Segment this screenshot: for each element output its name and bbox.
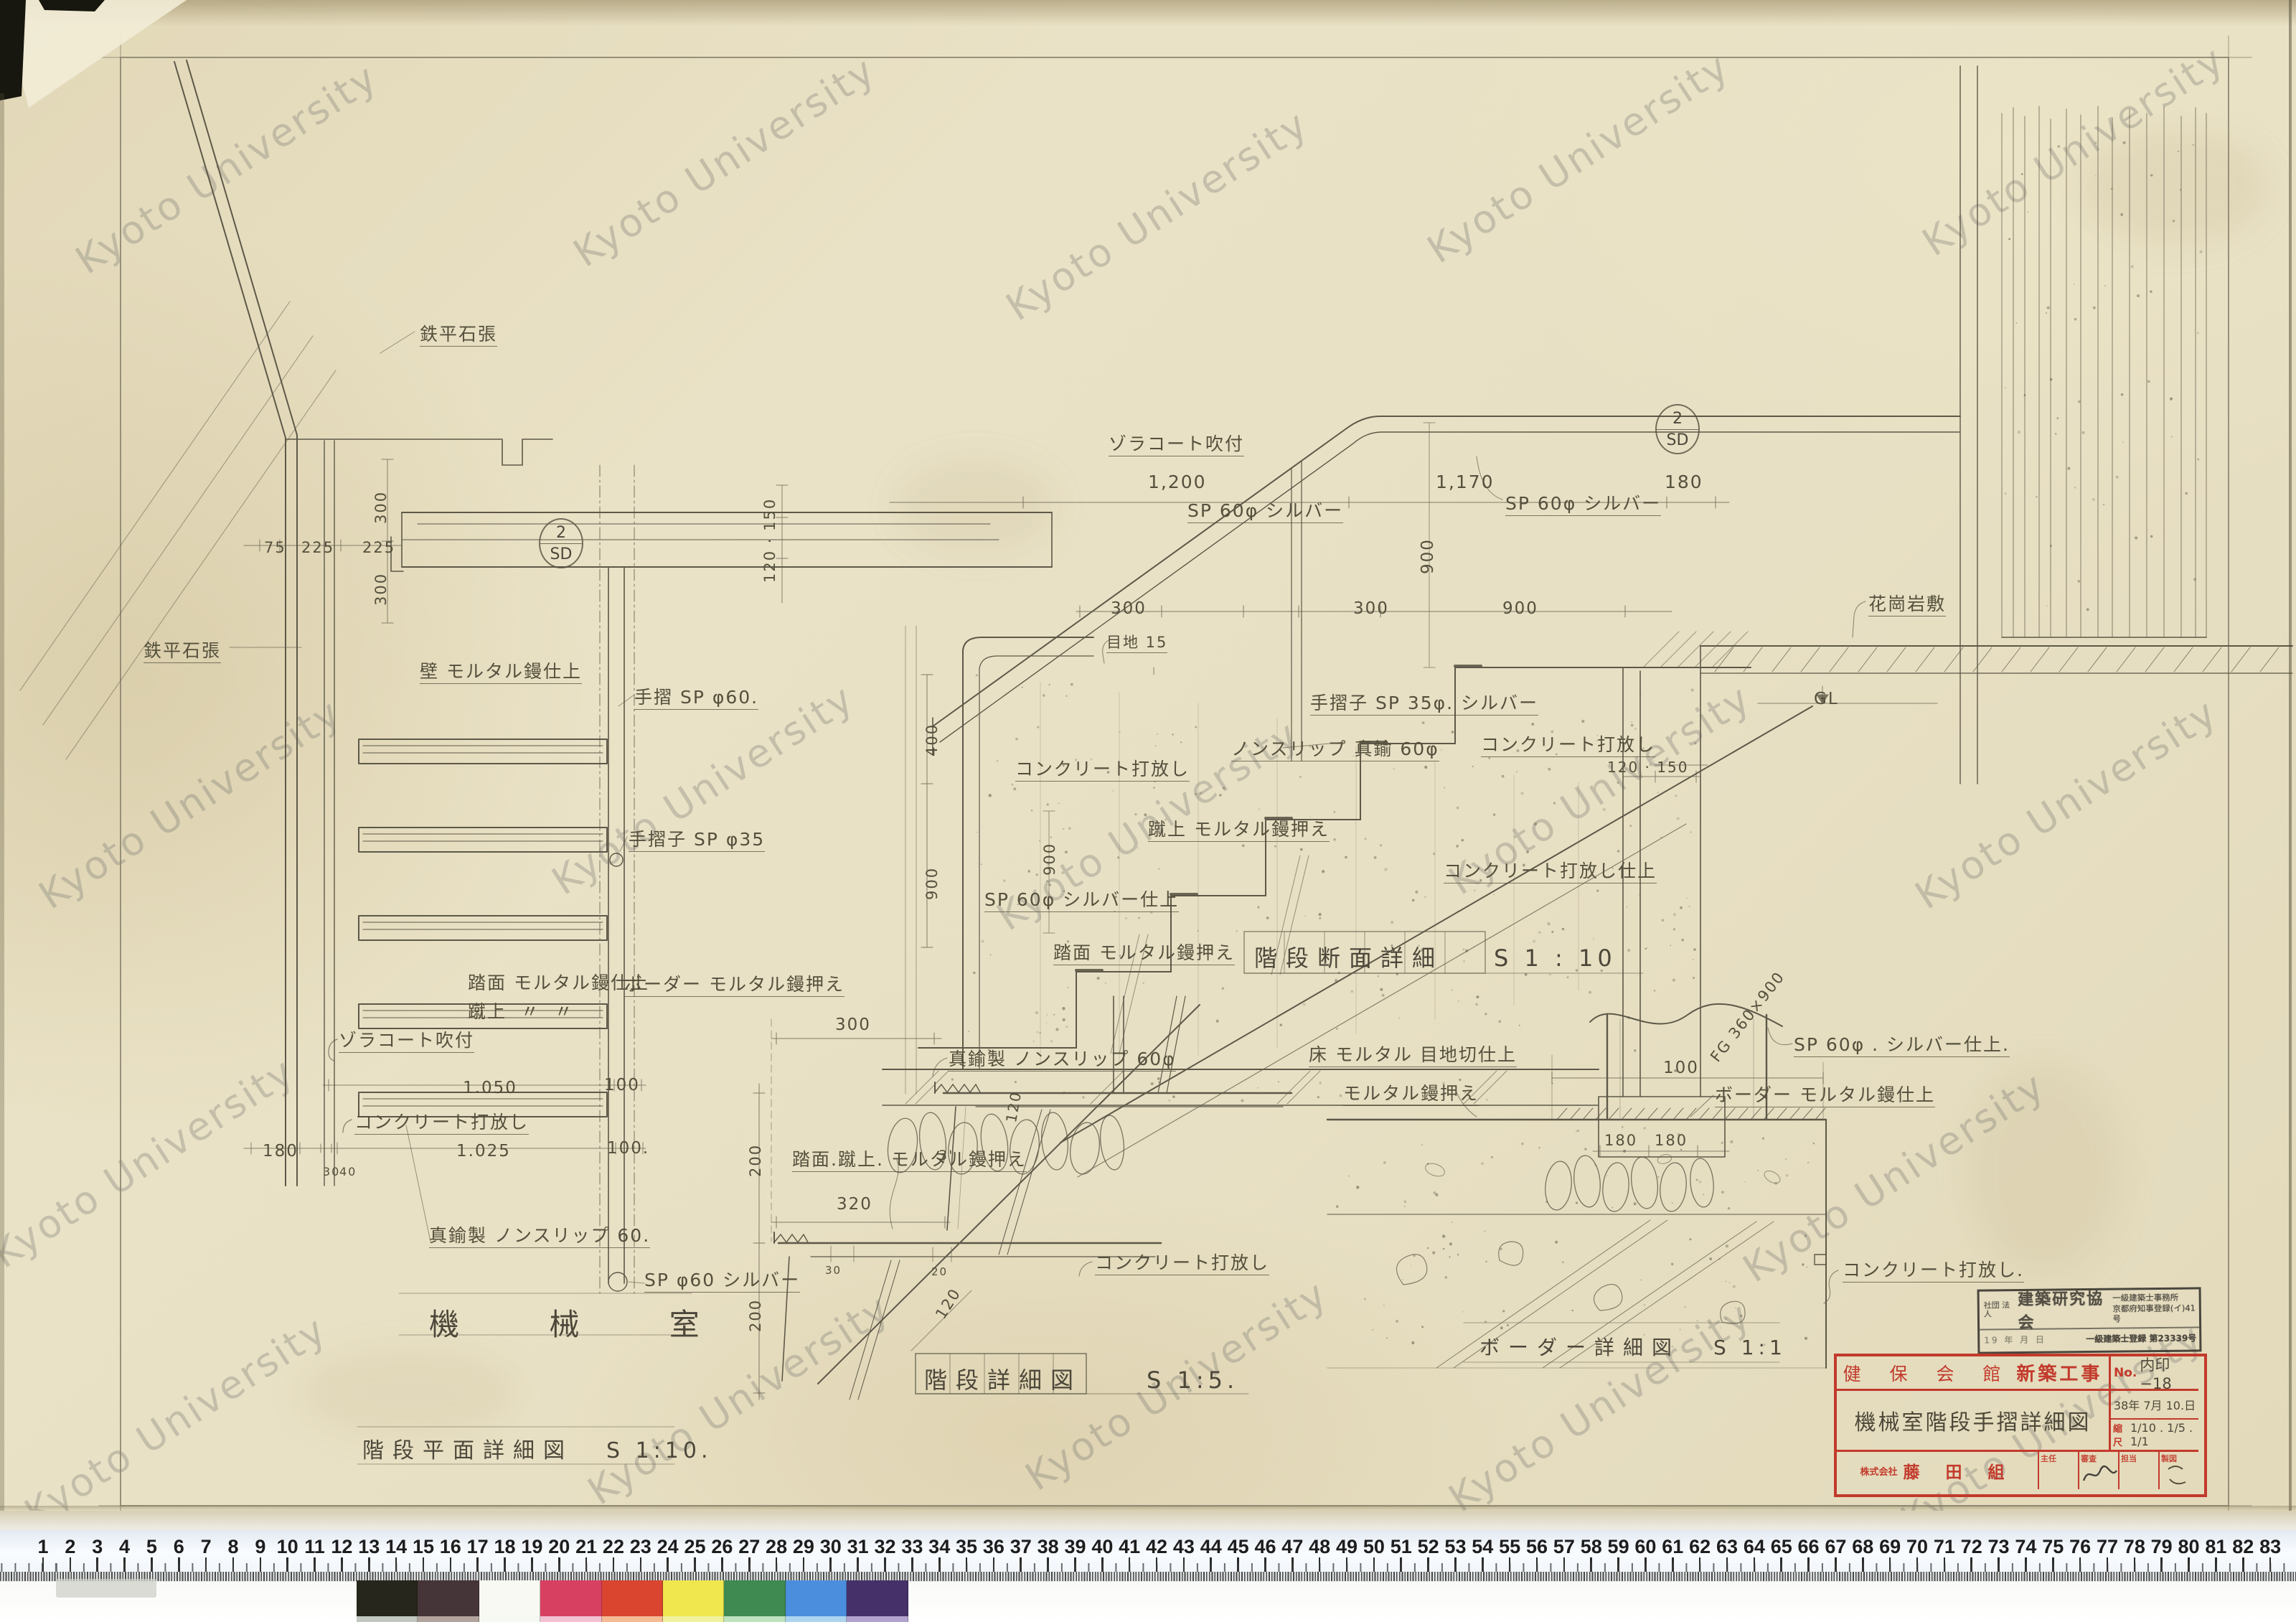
color-patch — [418, 1580, 479, 1616]
color-patch — [357, 1580, 418, 1616]
ruler-number: 26 — [711, 1536, 733, 1558]
ruler-number: 70 — [1906, 1536, 1928, 1558]
color-patch — [602, 1616, 663, 1622]
annotation-text: ボーダー モルタル鏝仕上 — [1715, 1085, 1935, 1107]
company-prefix: 株式会社 — [1860, 1464, 1897, 1478]
ruler-number: 78 — [2124, 1536, 2145, 1558]
ruler-number: 62 — [1689, 1536, 1711, 1558]
ruler-number: 19 — [521, 1536, 542, 1558]
ruler-number: 8 — [227, 1536, 238, 1558]
ruler-number: 42 — [1146, 1536, 1167, 1558]
ruler-number: 43 — [1173, 1536, 1195, 1558]
ruler-number: 69 — [1879, 1536, 1901, 1558]
ruler-number: 68 — [1852, 1536, 1873, 1558]
color-patch — [786, 1616, 847, 1622]
ruler-number: 61 — [1662, 1536, 1683, 1558]
ruler-number: 13 — [358, 1536, 380, 1558]
ruler-number: 60 — [1634, 1536, 1656, 1558]
ruler-number: 66 — [1798, 1536, 1820, 1558]
ruler-number: 31 — [847, 1536, 869, 1558]
color-patch — [663, 1580, 724, 1616]
ruler-number: 79 — [2151, 1536, 2173, 1558]
section-title: 階段断面詳細S 1 : 10 — [1254, 940, 1617, 973]
ruler-number: 25 — [684, 1536, 705, 1558]
ruler-number: 71 — [1934, 1536, 1955, 1558]
ruler-number: 83 — [2259, 1536, 2281, 1558]
ruler-number: 11 — [304, 1536, 325, 1558]
approval-cell: 主任 — [2038, 1452, 2078, 1489]
stamp-license-no: 一級建築士登録 第23339号 — [2086, 1331, 2196, 1345]
stamp-org-name: 建築研究協会 — [2018, 1286, 2113, 1333]
ruler-number: 41 — [1119, 1536, 1140, 1558]
approval-cell-signature: 審査 — [2078, 1452, 2118, 1489]
stamp-date-row: 19 年 月 日 — [1984, 1333, 2046, 1346]
room-label: 機 械 室 — [429, 1300, 740, 1344]
ruler-number: 23 — [630, 1536, 651, 1558]
scan-top-edge — [0, 0, 2296, 26]
ruler-number: 37 — [1010, 1536, 1032, 1558]
color-patch — [357, 1616, 418, 1622]
ruler-number: 4 — [119, 1536, 130, 1558]
annotation-text: 100 — [1663, 1059, 1699, 1077]
ruler-number: 33 — [901, 1536, 923, 1558]
ruler-half-ticks — [0, 1563, 2296, 1572]
ruler-number: 53 — [1444, 1536, 1466, 1558]
color-patch — [847, 1580, 908, 1616]
ruler-number: 2 — [65, 1536, 75, 1558]
color-patch — [663, 1616, 724, 1622]
scanned-drawing-page: Kyoto UniversityKyoto UniversityKyoto Un… — [0, 0, 2296, 1622]
ruler-number: 47 — [1281, 1536, 1303, 1558]
ruler-number: 52 — [1418, 1536, 1439, 1558]
ruler-number: 17 — [467, 1536, 489, 1558]
ruler-number: 6 — [174, 1536, 184, 1558]
ruler-number: 9 — [255, 1536, 265, 1558]
approval-cell-marks: 製図 — [2158, 1452, 2198, 1489]
color-patch — [724, 1616, 785, 1622]
color-patch — [786, 1580, 847, 1616]
ruler-number: 59 — [1608, 1536, 1629, 1558]
ruler-number: 29 — [793, 1536, 814, 1558]
detail-reference-bubble: 2SD — [539, 518, 583, 568]
scale-ruler: 1234567891011121314151617181920212223242… — [0, 1530, 2296, 1580]
pencil-marks — [2161, 1461, 2197, 1489]
ruler-number: 72 — [1961, 1536, 1982, 1558]
ruler-number: 55 — [1499, 1536, 1520, 1558]
scale-value: 1/10 . 1/5 . 1/1 — [2130, 1421, 2198, 1448]
color-patch — [479, 1580, 540, 1616]
bubble-text — [1657, 429, 1698, 430]
drawing-title: 機械室階段手摺詳細図 — [1837, 1391, 2111, 1450]
paper-right-edge — [2289, 0, 2292, 1511]
ruler-number: 73 — [1988, 1536, 2010, 1558]
ruler-number: 46 — [1254, 1536, 1276, 1558]
ruler-number: 56 — [1526, 1536, 1548, 1558]
plan-title: 階段平面詳細図S 1:10. — [362, 1433, 712, 1464]
ruler-number: 15 — [413, 1536, 434, 1558]
ruler-number: 75 — [2042, 1536, 2064, 1558]
color-patch — [540, 1616, 601, 1622]
bubble-text: SD — [550, 545, 573, 563]
bubble-text: 2 — [556, 524, 566, 542]
signature-scribble — [2081, 1461, 2118, 1489]
ruler-number: 65 — [1771, 1536, 1792, 1558]
border-detail-title: ボーダー詳細図S 1:1 — [1479, 1332, 1787, 1361]
construction-type: 新築工事 — [2016, 1359, 2102, 1386]
stamp-registration-line: 京都府知事登録(イ)41号 — [2112, 1303, 2196, 1324]
ruler-number: 28 — [766, 1536, 787, 1558]
ruler-number: 81 — [2205, 1536, 2226, 1558]
ruler-number: 36 — [983, 1536, 1004, 1558]
ruler-number: 48 — [1309, 1536, 1330, 1558]
border-detail-annotations: SP 60φ . シルバー仕上.100モルタル鏝押えボーダー モルタル鏝仕上コン… — [0, 0, 2296, 1511]
ruler-number: 16 — [440, 1536, 461, 1558]
ruler-number: 1 — [37, 1536, 48, 1558]
annotation-text: SP 60φ . シルバー仕上. — [1794, 1035, 2010, 1057]
color-patch — [540, 1580, 601, 1616]
ruler-number: 45 — [1228, 1536, 1249, 1558]
ruler-number: 57 — [1553, 1536, 1575, 1558]
ruler-number: 20 — [548, 1536, 570, 1558]
ruler-number: 77 — [2097, 1536, 2118, 1558]
scan-reference-strip: 1234567891011121314151617181920212223242… — [0, 1511, 2296, 1622]
ruler-number: 27 — [738, 1536, 760, 1558]
stair-detail-title: 階段詳細図S 1:5. — [924, 1362, 1238, 1395]
bubble-text: SD — [1667, 431, 1689, 449]
ruler-number: 63 — [1716, 1536, 1738, 1558]
ruler-number: 44 — [1200, 1536, 1222, 1558]
ruler-number: 32 — [874, 1536, 895, 1558]
bubble-text: 2 — [1672, 410, 1683, 428]
ruler-mm-ticks — [0, 1572, 2296, 1581]
ruler-number: 39 — [1064, 1536, 1086, 1558]
ruler-number: 7 — [201, 1536, 212, 1558]
color-patch — [418, 1616, 479, 1622]
ruler-number: 82 — [2232, 1536, 2254, 1558]
ruler-number: 35 — [956, 1536, 977, 1558]
title-block: 健 保 会 館 新築工事 No. 内印−18 機械室階段手摺詳細図 38年 7月… — [1834, 1354, 2207, 1497]
ruler-number: 58 — [1581, 1536, 1602, 1558]
drawing-no-value: 内印−18 — [2140, 1354, 2198, 1392]
paper-left-edge — [0, 93, 4, 1511]
ruler-number: 22 — [603, 1536, 624, 1558]
architect-approval-stamp: 社団 法人 建築研究協会 一級建築士事務所 京都府知事登録(イ)41号 19 年… — [1977, 1287, 2202, 1354]
stamp-org-prefix: 社団 法人 — [1984, 1302, 2015, 1319]
company-name: 藤 田 組 — [1904, 1458, 2015, 1483]
color-patch — [724, 1580, 785, 1616]
ruler-number: 50 — [1363, 1536, 1385, 1558]
drawing-paper: Kyoto UniversityKyoto UniversityKyoto Un… — [0, 0, 2296, 1511]
ruler-number: 74 — [2015, 1536, 2036, 1558]
annotation-text: モルタル鏝押え — [1343, 1084, 1479, 1106]
ruler-number: 38 — [1038, 1536, 1059, 1558]
annotation-text: コンクリート打放し. — [1843, 1260, 2024, 1283]
scan-corner-mark — [39, 0, 105, 11]
ruler-number: 10 — [277, 1536, 298, 1558]
ruler-number: 76 — [2069, 1536, 2091, 1558]
drawing-date: 38年 7月 10.日 — [2111, 1391, 2198, 1420]
drawing-no-label: No. — [2114, 1366, 2137, 1380]
ruler-number: 30 — [820, 1536, 842, 1558]
ruler-number: 3 — [92, 1536, 103, 1558]
ruler-number: 21 — [575, 1536, 597, 1558]
ruler-number: 67 — [1825, 1536, 1846, 1558]
ruler-number: 51 — [1391, 1536, 1412, 1558]
approval-cell: 担当 — [2118, 1452, 2158, 1489]
bubble-text — [540, 543, 582, 544]
ruler-number: 64 — [1744, 1536, 1765, 1558]
ruler-number: 14 — [385, 1536, 407, 1558]
color-patch — [602, 1580, 663, 1616]
ruler-number: 54 — [1472, 1536, 1493, 1558]
ruler-number: 5 — [146, 1536, 157, 1558]
detail-reference-bubble: 2SD — [1655, 404, 1700, 454]
project-name: 健 保 会 館 — [1843, 1360, 2013, 1386]
ruler-number: 24 — [657, 1536, 679, 1558]
stamp-office-line: 一級建築士事務所 — [2112, 1293, 2196, 1304]
color-patch — [847, 1616, 908, 1622]
tape-fragment — [56, 1579, 156, 1598]
scale-label: 縮尺 — [2113, 1421, 2128, 1448]
ruler-number: 49 — [1336, 1536, 1358, 1558]
ruler-number: 18 — [494, 1536, 516, 1558]
ruler-number: 12 — [331, 1536, 352, 1558]
color-patch — [479, 1616, 540, 1622]
ruler-number: 80 — [2178, 1536, 2200, 1558]
ruler-number: 34 — [928, 1536, 950, 1558]
ruler-number: 40 — [1091, 1536, 1113, 1558]
